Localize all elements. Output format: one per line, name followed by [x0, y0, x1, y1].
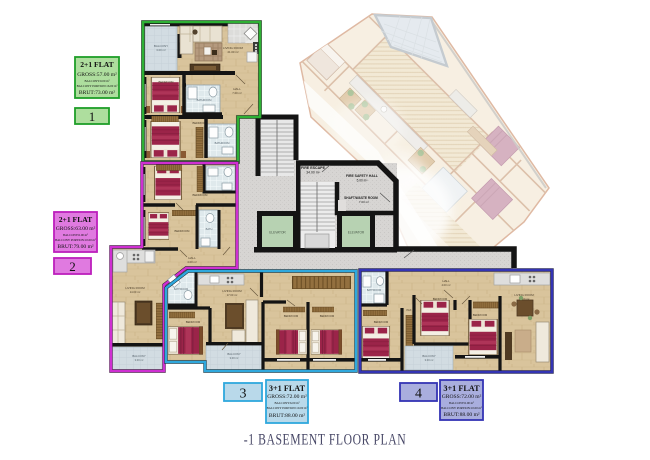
- svg-text:BEDROOM: BEDROOM: [284, 314, 299, 318]
- svg-text:BATHROOM: BATHROOM: [215, 141, 230, 145]
- svg-text:LIVING ROOM: LIVING ROOM: [222, 289, 242, 293]
- svg-text:-1 BASEMENT FLOOR PLAN: -1 BASEMENT FLOOR PLAN: [244, 431, 406, 449]
- svg-text:BATH: BATH: [206, 227, 213, 231]
- svg-text:BATHROOM: BATHROOM: [367, 289, 381, 292]
- svg-text:ELEVATOR: ELEVATOR: [348, 231, 365, 235]
- svg-text:BEDROOM: BEDROOM: [159, 80, 175, 84]
- svg-text:BEDROOM: BEDROOM: [473, 313, 488, 317]
- svg-text:3+1 FLAT: 3+1 FLAT: [269, 384, 306, 393]
- svg-text:3.00 m²: 3.00 m²: [156, 48, 166, 52]
- svg-text:3.00 m²: 3.00 m²: [135, 358, 144, 362]
- svg-text:7.00 m²: 7.00 m²: [232, 91, 242, 95]
- svg-text:HALL: HALL: [442, 279, 450, 283]
- svg-text:4.00 m²: 4.00 m²: [441, 283, 450, 287]
- svg-text:BEDROOM: BEDROOM: [193, 193, 209, 197]
- svg-text:1: 1: [89, 109, 96, 124]
- svg-text:LIVING ROOM: LIVING ROOM: [125, 286, 145, 290]
- svg-text:BALCONY:6.00 m²: BALCONY:6.00 m²: [274, 401, 299, 405]
- svg-text:14.00 m²: 14.00 m²: [130, 290, 141, 294]
- svg-text:LIVING ROOM: LIVING ROOM: [514, 293, 534, 297]
- svg-text:GROSS:63.00 m²: GROSS:63.00 m²: [56, 226, 96, 232]
- svg-text:GROSS:72.00 m²: GROSS:72.00 m²: [267, 394, 307, 400]
- svg-text:GROSS:72.00 m²: GROSS:72.00 m²: [442, 394, 482, 400]
- svg-text:BALCONY PORTION:10.00 m²: BALCONY PORTION:10.00 m²: [267, 406, 308, 410]
- svg-text:BEDROOM: BEDROOM: [374, 320, 389, 324]
- svg-text:5.00 m²: 5.00 m²: [357, 179, 368, 183]
- svg-text:BRUT:88.00 m²: BRUT:88.00 m²: [269, 413, 306, 419]
- svg-text:BALCONY: BALCONY: [227, 352, 241, 356]
- svg-text:34.00 m²: 34.00 m²: [306, 171, 320, 175]
- svg-text:2+1 FLAT: 2+1 FLAT: [59, 215, 93, 224]
- svg-text:ELEVATOR: ELEVATOR: [269, 231, 286, 235]
- svg-text:BALCONY PORTION:10.00 m²: BALCONY PORTION:10.00 m²: [441, 406, 482, 410]
- svg-text:FIRE SAFETY HALL: FIRE SAFETY HALL: [346, 174, 378, 178]
- svg-text:21.00 m²: 21.00 m²: [227, 50, 238, 54]
- svg-text:FIRE ESCAPE: FIRE ESCAPE: [301, 166, 326, 170]
- svg-text:2: 2: [69, 259, 76, 274]
- svg-text:BEDROOM: BEDROOM: [175, 229, 191, 233]
- svg-text:BALCONY:6.00 m²: BALCONY:6.00 m²: [449, 401, 474, 405]
- svg-text:BATHROOM: BATHROOM: [174, 288, 188, 291]
- svg-text:4.00 m²: 4.00 m²: [187, 260, 197, 264]
- svg-text:3.00 m²: 3.00 m²: [425, 358, 434, 362]
- svg-text:BEDROOM: BEDROOM: [186, 320, 201, 324]
- svg-text:BALCONY:6.00 m²: BALCONY:6.00 m²: [63, 233, 88, 237]
- svg-text:BRUT:79.00 m²: BRUT:79.00 m²: [57, 244, 94, 250]
- svg-text:BALCONY: BALCONY: [132, 354, 146, 358]
- svg-text:BRUT:88.00 m²: BRUT:88.00 m²: [443, 412, 480, 418]
- svg-text:17.00 m²: 17.00 m²: [227, 293, 238, 297]
- svg-text:BALCONY PORTION:10.00 m²: BALCONY PORTION:10.00 m²: [55, 238, 96, 242]
- svg-text:BRUT:73.00 m²: BRUT:73.00 m²: [79, 90, 116, 96]
- svg-text:GROSS:57.00 m²: GROSS:57.00 m²: [77, 72, 117, 78]
- svg-text:PAX: PAX: [407, 308, 412, 312]
- svg-text:3: 3: [240, 387, 247, 402]
- svg-text:BEDROOM: BEDROOM: [320, 314, 335, 318]
- svg-text:2+1 FLAT: 2+1 FLAT: [80, 60, 114, 69]
- svg-text:3.00 m²: 3.00 m²: [230, 356, 239, 360]
- svg-text:4: 4: [415, 387, 422, 402]
- svg-text:BALCONY: BALCONY: [422, 354, 436, 358]
- svg-text:7.00 m²: 7.00 m²: [359, 200, 369, 204]
- svg-text:BATHROOM: BATHROOM: [197, 98, 212, 102]
- svg-text:BALCONY PORTION:16.00 m²: BALCONY PORTION:16.00 m²: [77, 84, 118, 88]
- svg-text:BALCONY:0.00 m²: BALCONY:0.00 m²: [84, 79, 109, 83]
- svg-text:3+1 FLAT: 3+1 FLAT: [443, 384, 480, 393]
